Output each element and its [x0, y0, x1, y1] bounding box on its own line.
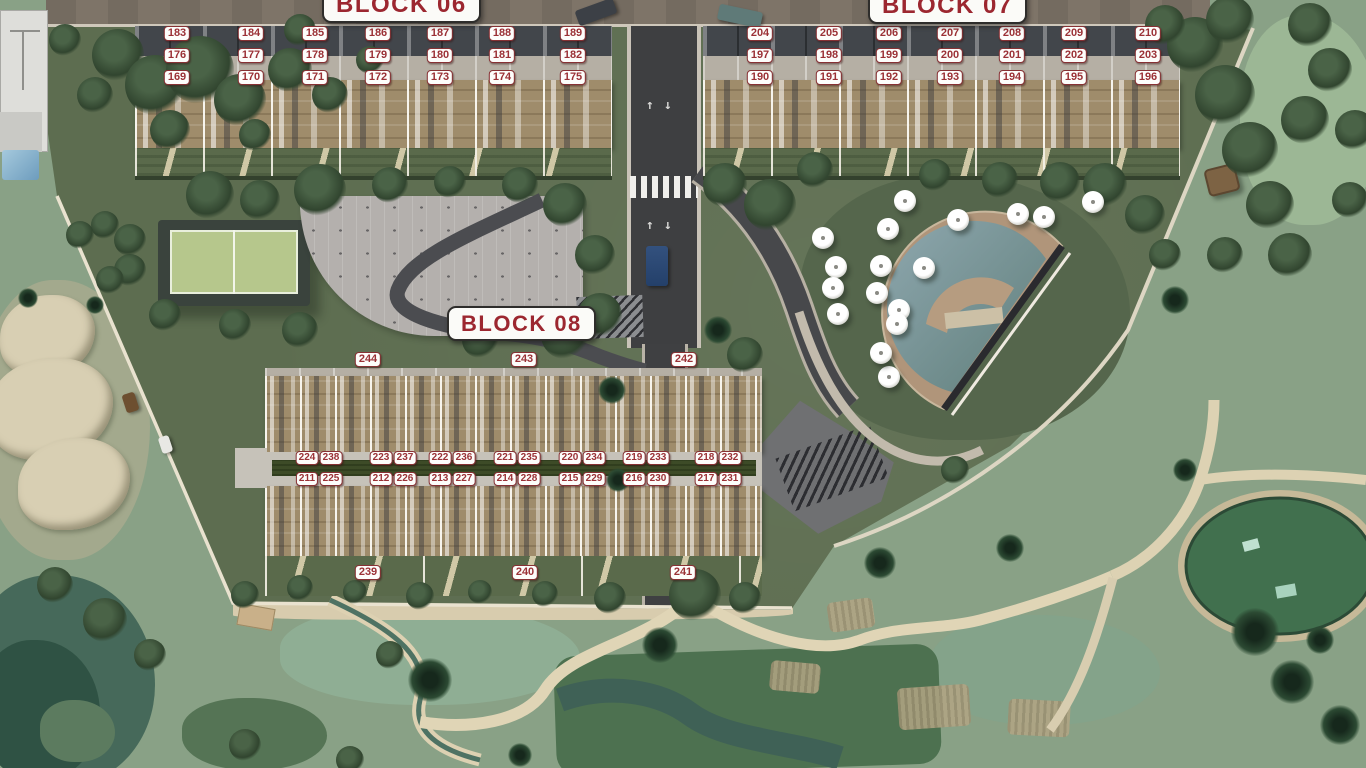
block06-gardens — [135, 148, 612, 176]
palm-tree — [1270, 660, 1314, 704]
golf-path — [1112, 400, 1214, 576]
lane-arrow-icon: ↑ — [646, 98, 654, 113]
rough-patch — [769, 660, 821, 694]
golf-path — [1200, 475, 1366, 480]
block06-terraces — [135, 80, 612, 148]
block08-west-entrance — [235, 448, 267, 488]
block07-terraces — [703, 80, 1180, 148]
palm-tree — [1306, 626, 1334, 654]
block06-promenade — [135, 56, 612, 80]
lane-arrow-icon: ↑ — [646, 218, 654, 233]
crosswalk — [630, 176, 698, 198]
palm-tree — [1161, 286, 1189, 314]
gazebo — [1203, 163, 1241, 198]
pond-reflection — [1242, 538, 1260, 552]
pond-reflection — [1275, 583, 1297, 598]
block07-hedge — [703, 176, 1180, 180]
rough-patch — [826, 597, 876, 633]
tree — [1207, 237, 1243, 273]
palm-tree — [1320, 705, 1360, 745]
block08-gardens — [265, 556, 762, 596]
palm-tree — [1173, 458, 1197, 482]
block06-hedge — [135, 176, 612, 180]
block07-label: BLOCK 07 — [868, 0, 1027, 24]
padel-court-net — [233, 230, 235, 294]
block08-label: BLOCK 08 — [447, 306, 596, 341]
golf-dark-patch — [553, 643, 942, 768]
lake-island — [40, 700, 115, 762]
top-road — [46, 0, 1210, 27]
car-on-road — [646, 246, 668, 286]
block06-label: BLOCK 06 — [322, 0, 481, 23]
lane-arrow-icon: ↓ — [664, 218, 672, 233]
palm-tree — [508, 743, 532, 767]
clubhouse-wall — [10, 30, 40, 32]
clubhouse-patio — [0, 112, 42, 152]
block08-terraces-north — [265, 376, 762, 452]
palm-tree — [996, 534, 1024, 562]
block08-north-walk — [265, 368, 762, 376]
tree — [1268, 233, 1312, 277]
block07-gardens — [703, 148, 1180, 176]
block07-promenade — [703, 56, 1180, 80]
tree — [336, 746, 364, 768]
lane-arrow-icon: ↓ — [664, 98, 672, 113]
block07-roof — [703, 26, 1180, 56]
pond — [1186, 498, 1366, 634]
golf-green-patch — [280, 605, 580, 705]
block08-central-hedge — [272, 460, 756, 476]
golf-dark-patch — [182, 698, 327, 768]
block08-terraces-south — [265, 486, 762, 556]
palm-tree — [1231, 608, 1279, 656]
rough-patch — [897, 684, 972, 731]
clubhouse-pool — [2, 150, 39, 180]
resort-site-plan: ↑ ↓ ↑ ↓ — [0, 0, 1366, 768]
palm-tree — [864, 547, 896, 579]
rough-patch — [1007, 698, 1071, 737]
clubhouse-wall — [22, 30, 24, 90]
block06-roof — [135, 26, 612, 56]
golf-green-patch — [1240, 15, 1366, 225]
pond-sand-ring — [1178, 490, 1366, 642]
